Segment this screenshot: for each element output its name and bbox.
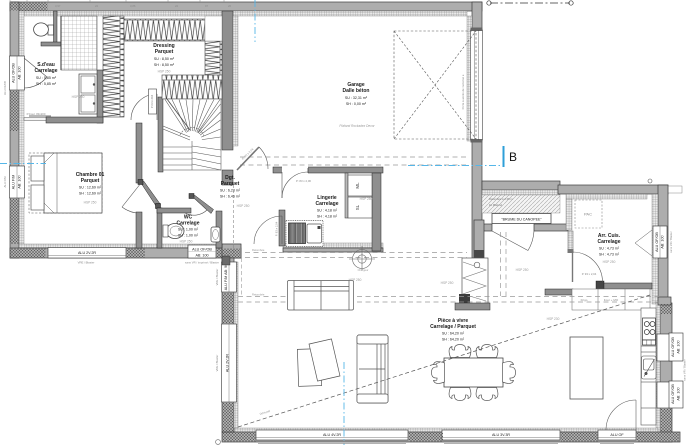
svg-text:SU : 32,31 m²: SU : 32,31 m² <box>345 96 368 100</box>
svg-text:AB: 100: AB: 100 <box>18 175 22 188</box>
svg-text:SU : 6,23 m²: SU : 6,23 m² <box>220 189 241 193</box>
svg-text:Frigo: Frigo <box>581 298 588 302</box>
svg-text:sans VR / imprimé / Blaster: sans VR / imprimé / Blaster <box>185 261 219 265</box>
svg-text:SU : 4,18 m²: SU : 4,18 m² <box>317 209 338 213</box>
svg-text:P: 83 x 2,06: P: 83 x 2,06 <box>296 179 311 183</box>
svg-text:Carrelage: Carrelage <box>315 201 338 207</box>
svg-text:AB: 100: AB: 100 <box>661 235 665 248</box>
svg-text:ALU F/M: ALU F/M <box>3 176 7 188</box>
svg-text:SH : 0,00 m²: SH : 0,00 m² <box>346 102 367 106</box>
svg-text:SL: SL <box>355 204 360 210</box>
svg-text:SU : 1,00 m²: SU : 1,00 m² <box>178 228 199 232</box>
svg-text:VRE / Blaster: VRE / Blaster <box>78 261 95 265</box>
svg-text:ALU OF/OB: ALU OF/OB <box>12 63 16 83</box>
svg-text:97: 97 <box>205 4 209 8</box>
svg-text:P 63 x 204: P 63 x 204 <box>150 94 154 108</box>
svg-text:VRE / Blaster: VRE / Blaster <box>215 355 219 372</box>
svg-text:HSP 250: HSP 250 <box>237 204 250 208</box>
svg-text:ML: ML <box>355 182 360 189</box>
svg-text:SH : 64,20 m²: SH : 64,20 m² <box>442 338 465 342</box>
svg-text:ALU OF/OB: ALU OF/OB <box>655 232 659 252</box>
svg-text:AB: 100: AB: 100 <box>677 387 681 400</box>
svg-text:ALU 2V.2R: ALU 2V.2R <box>226 354 230 372</box>
svg-text:Carrelage: Carrelage <box>176 221 199 227</box>
svg-text:ALU 4V.2R: ALU 4V.2R <box>323 433 341 437</box>
svg-text:HSP 250: HSP 250 <box>360 197 373 201</box>
svg-text:Retombée à 2,35 m: Retombée à 2,35 m <box>489 197 513 201</box>
svg-text:Retombée: Retombée <box>252 248 265 252</box>
svg-text:Retombée: Retombée <box>252 293 265 297</box>
svg-text:sans VR / Blaster: sans VR / Blaster <box>669 231 673 253</box>
svg-text:B: B <box>509 150 517 164</box>
svg-text:AB: 100: AB: 100 <box>18 66 22 79</box>
svg-text:HSP 250: HSP 250 <box>349 278 362 282</box>
svg-text:3,86: 3,86 <box>130 4 136 8</box>
svg-text:AB: 100: AB: 100 <box>195 254 208 258</box>
svg-text:3,97: 3,97 <box>55 4 61 8</box>
svg-text:SU : 64,20 m²: SU : 64,20 m² <box>442 332 465 336</box>
svg-text:Parquet: Parquet <box>155 49 174 55</box>
svg-text:ALU F/M: ALU F/M <box>12 175 16 190</box>
svg-text:SH : 1,00 m²: SH : 1,00 m² <box>178 234 199 238</box>
svg-text:ALU OF: ALU OF <box>610 433 624 437</box>
svg-text:SH : 4,18 m²: SH : 4,18 m² <box>317 215 338 219</box>
svg-text:"BRUME DU CANOPEE": "BRUME DU CANOPEE" <box>501 217 542 221</box>
svg-text:ALU 0F/0B: ALU 0F/0B <box>3 81 7 95</box>
svg-text:HSP 250: HSP 250 <box>72 95 85 99</box>
svg-text:sans VR / Blaster: sans VR / Blaster <box>683 359 687 381</box>
svg-text:HSP 250: HSP 250 <box>180 240 193 244</box>
svg-text:SH : 8,50 m²: SH : 8,50 m² <box>154 63 175 67</box>
svg-text:ALU 3V.3R: ALU 3V.3R <box>492 433 510 437</box>
svg-text:22: 22 <box>175 4 179 8</box>
svg-text:SH : 5,85 m²: SH : 5,85 m² <box>36 82 57 86</box>
svg-text:Chargeur: Chargeur <box>358 268 369 272</box>
svg-text:SU : 12,69 m²: SU : 12,69 m² <box>79 186 102 190</box>
svg-text:Dalle béton: Dalle béton <box>343 88 370 94</box>
svg-text:SH : 4,73 m²: SH : 4,73 m² <box>599 253 620 257</box>
svg-text:Four + MO: Four + MO <box>604 298 619 302</box>
svg-text:Parquet: Parquet <box>221 181 240 187</box>
svg-text:26: 26 <box>228 4 232 8</box>
svg-text:HSP 250: HSP 250 <box>158 70 171 74</box>
svg-text:ALU F/M AB: 90: ALU F/M AB: 90 <box>224 264 228 290</box>
svg-text:HSP 250: HSP 250 <box>603 260 616 264</box>
svg-text:HSP 250: HSP 250 <box>441 281 454 285</box>
svg-text:SU : 8,50 m²: SU : 8,50 m² <box>154 57 175 61</box>
svg-text:P. 93 x 2,04: P. 93 x 2,04 <box>582 272 597 276</box>
svg-text:HSP 230: HSP 230 <box>547 317 560 321</box>
svg-text:P. 83 x 2,04: P. 83 x 2,04 <box>275 221 279 236</box>
svg-text:SH : 12,69 m²: SH : 12,69 m² <box>79 192 102 196</box>
svg-text:Carrelage / Parquet: Carrelage / Parquet <box>430 324 476 330</box>
svg-text:Plafond Rockadex Decor: Plafond Rockadex Decor <box>339 124 375 128</box>
svg-text:HSP 250: HSP 250 <box>516 268 529 272</box>
svg-text:22: 22 <box>30 4 34 8</box>
svg-text:PAC: PAC <box>584 212 592 217</box>
svg-text:Porte à accès de motorisé e: Porte à accès de motorisé e <box>461 74 465 109</box>
svg-text:22: 22 <box>95 4 99 8</box>
svg-text:Parquet: Parquet <box>81 178 100 184</box>
svg-text:SU : 5,85 m²: SU : 5,85 m² <box>36 76 57 80</box>
svg-text:ALU OF/OB: ALU OF/OB <box>671 337 675 357</box>
svg-text:26: 26 <box>16 4 20 8</box>
svg-text:Fx Plafond: Fx Plafond <box>489 203 502 207</box>
svg-text:SU : 4,73 m²: SU : 4,73 m² <box>599 247 620 251</box>
svg-text:VRE / Blaster: VRE / Blaster <box>215 269 219 286</box>
svg-text:P.Coul. 83x200: P.Coul. 83x200 <box>27 112 46 116</box>
svg-text:ALU OF/OB: ALU OF/OB <box>192 247 212 251</box>
svg-text:AB: 100: AB: 100 <box>677 340 681 353</box>
svg-text:SH : 6,45 m²: SH : 6,45 m² <box>220 195 241 199</box>
svg-text:ALU OF/OB: ALU OF/OB <box>671 384 675 404</box>
svg-text:ALU 2V.2R: ALU 2V.2R <box>78 251 96 255</box>
svg-text:Carrelage: Carrelage <box>34 68 57 74</box>
svg-text:Carrelage: Carrelage <box>597 239 620 245</box>
svg-text:HSP 250: HSP 250 <box>84 201 97 205</box>
